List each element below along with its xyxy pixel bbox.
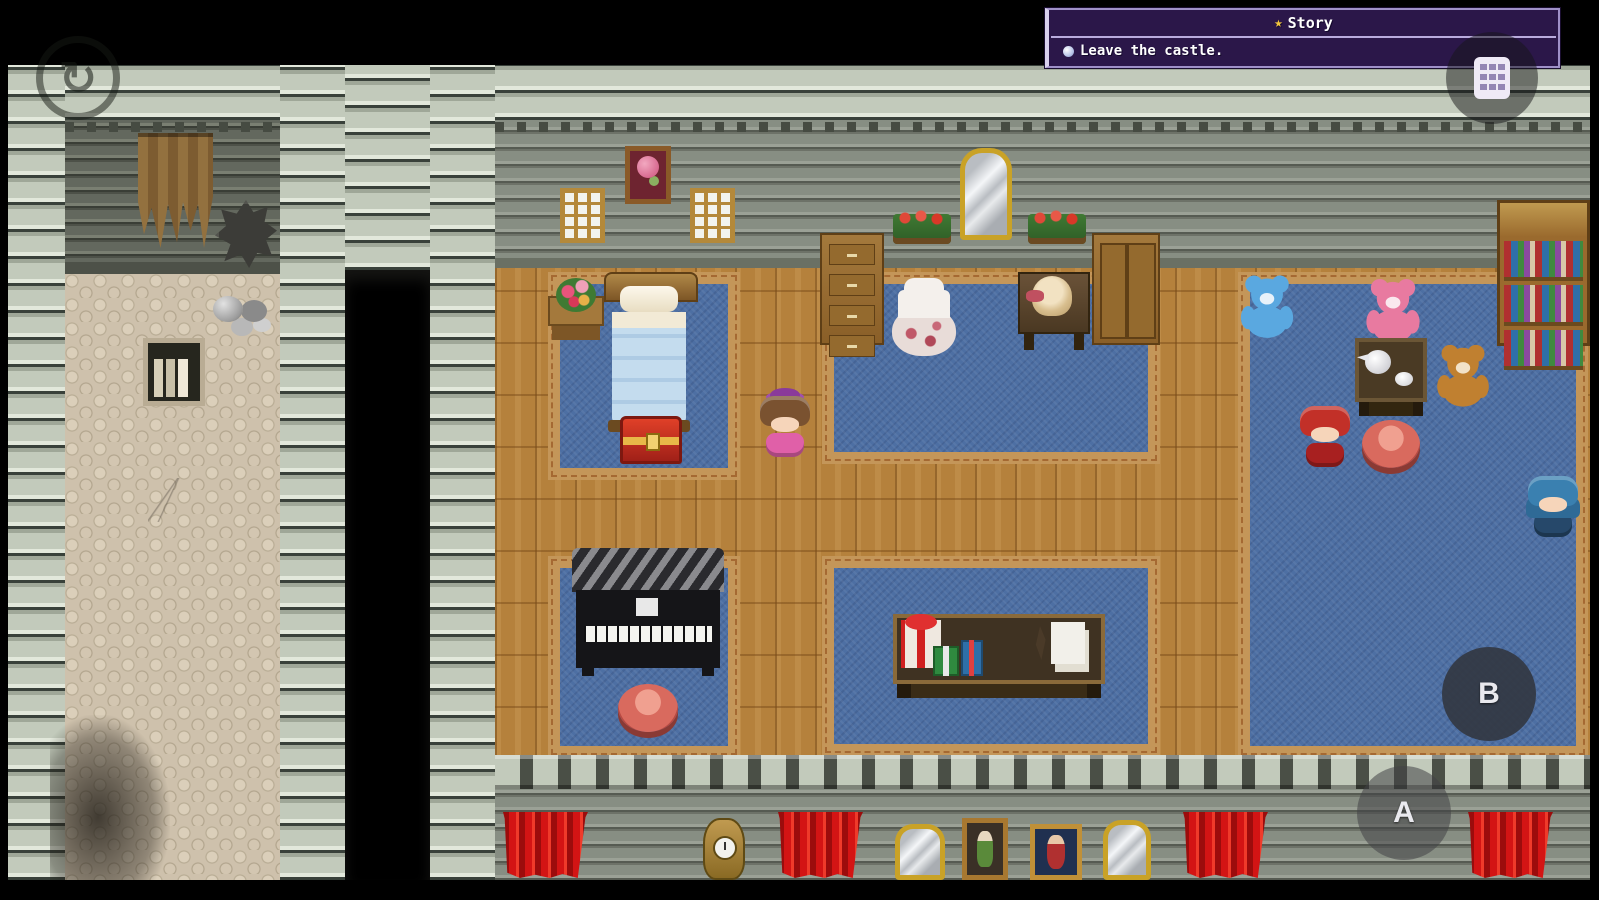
portrait-figure: [1047, 835, 1065, 869]
gown-mannequin: [888, 272, 960, 358]
gift-ribbon: [969, 640, 974, 676]
piano-legs: [582, 666, 714, 676]
rock-pile: [205, 278, 277, 336]
b-button-label: B: [1478, 677, 1500, 711]
gift-ribbon: [943, 646, 949, 676]
left-void: [0, 0, 8, 900]
red-haired-girl: [1300, 406, 1350, 470]
mid-wall-column: [280, 65, 345, 880]
star-icon: ★: [1274, 15, 1282, 31]
corridor-crenellation: [65, 122, 280, 132]
doll-ribbon: [1026, 290, 1044, 302]
quest-title: Story: [1288, 14, 1333, 32]
rock: [213, 296, 243, 322]
desk-legs: [1024, 334, 1084, 350]
gift-blue: [961, 640, 983, 676]
second-wall-column: [430, 65, 495, 880]
flower-arrangement: [556, 278, 596, 312]
orb-bullet-icon: [1063, 46, 1074, 57]
blanket: [612, 328, 686, 422]
flower-box: [1028, 214, 1086, 244]
b-button[interactable]: B: [1442, 647, 1536, 741]
scratch-mark: [148, 478, 182, 522]
red-curtain: [778, 812, 863, 878]
pink-teddy-bear-icon: [1362, 276, 1424, 344]
blue-teddy-bear-icon: [1238, 272, 1296, 340]
clock-hands: [724, 842, 726, 850]
flowers: [1032, 210, 1082, 228]
heroine-girl: [760, 396, 810, 460]
clock-face: [713, 836, 737, 860]
red-curtain: [503, 812, 588, 878]
wardrobe-doors: [1100, 243, 1156, 339]
papers: [1051, 622, 1085, 664]
flower-box: [893, 214, 951, 244]
wall-book-niche: [143, 338, 205, 406]
wardrobe: [1092, 233, 1160, 345]
gown-bodice: [904, 278, 944, 314]
table-legs: [897, 684, 1101, 698]
treasure-chest: [620, 416, 682, 464]
niche-books: [154, 359, 194, 397]
circular-arrow-icon: ↻: [59, 51, 98, 105]
small-mirror: [1103, 820, 1151, 880]
piano-keys: [584, 626, 712, 642]
pink-stool: [618, 684, 678, 732]
tall-dresser: [820, 233, 884, 345]
flower-painting: [625, 146, 671, 204]
red-stool: [1362, 420, 1420, 468]
red-curtain: [1183, 812, 1268, 878]
tea-table: [1355, 338, 1427, 420]
table-top: [1355, 338, 1427, 402]
wall-clock: [703, 818, 745, 880]
gift-table: [893, 612, 1105, 702]
skip-button[interactable]: ↻: [36, 36, 120, 120]
piano-music-sheet: [636, 598, 658, 616]
small-mirror: [895, 824, 945, 880]
teacup: [1395, 372, 1413, 386]
portrait-red-figure: [1030, 824, 1082, 880]
gift-green: [933, 646, 959, 676]
portrait-green-lady: [962, 818, 1008, 880]
gift-bow: [905, 614, 937, 630]
bed: [608, 272, 690, 440]
flower-vase-table: [548, 282, 604, 342]
quest-objective-text: Leave the castle.: [1080, 43, 1223, 59]
pillow: [620, 286, 678, 312]
door-lintel-wall: [345, 65, 430, 270]
tall-mirror: [960, 148, 1012, 240]
portrait-figure: [977, 831, 993, 867]
doorway: [345, 270, 430, 880]
blue-haired-girl: [1528, 476, 1578, 540]
bottom-void: [0, 880, 1599, 900]
keypad-grid-icon: [1474, 57, 1510, 99]
table-legs: [1359, 402, 1423, 416]
right-void: [1590, 0, 1599, 900]
hall-wall-ledge: [495, 258, 1599, 268]
table-front: [552, 326, 600, 340]
game-viewport[interactable]: ↻ ★ Story Leave the castle. B A: [0, 0, 1599, 900]
soot-stain: [50, 715, 170, 885]
piano: [572, 548, 724, 680]
a-button[interactable]: A: [1357, 766, 1451, 860]
bookshelf-top: [1500, 203, 1587, 237]
window: [690, 188, 735, 243]
menu-button[interactable]: [1446, 32, 1538, 124]
brown-teddy-bear-icon: [1432, 342, 1494, 408]
chest-lock: [646, 433, 660, 451]
piano-lid: [572, 548, 724, 592]
window: [560, 188, 605, 243]
red-curtain: [1468, 812, 1553, 878]
flowers: [897, 210, 947, 228]
bookshelf: [1497, 200, 1590, 346]
teapot: [1365, 350, 1391, 374]
painting-flowers: [637, 156, 659, 178]
doll-desk: [1018, 268, 1090, 356]
outer-wall-band: [0, 65, 1599, 120]
hall-crenellation: [495, 122, 1599, 132]
a-button-label: A: [1393, 796, 1415, 830]
